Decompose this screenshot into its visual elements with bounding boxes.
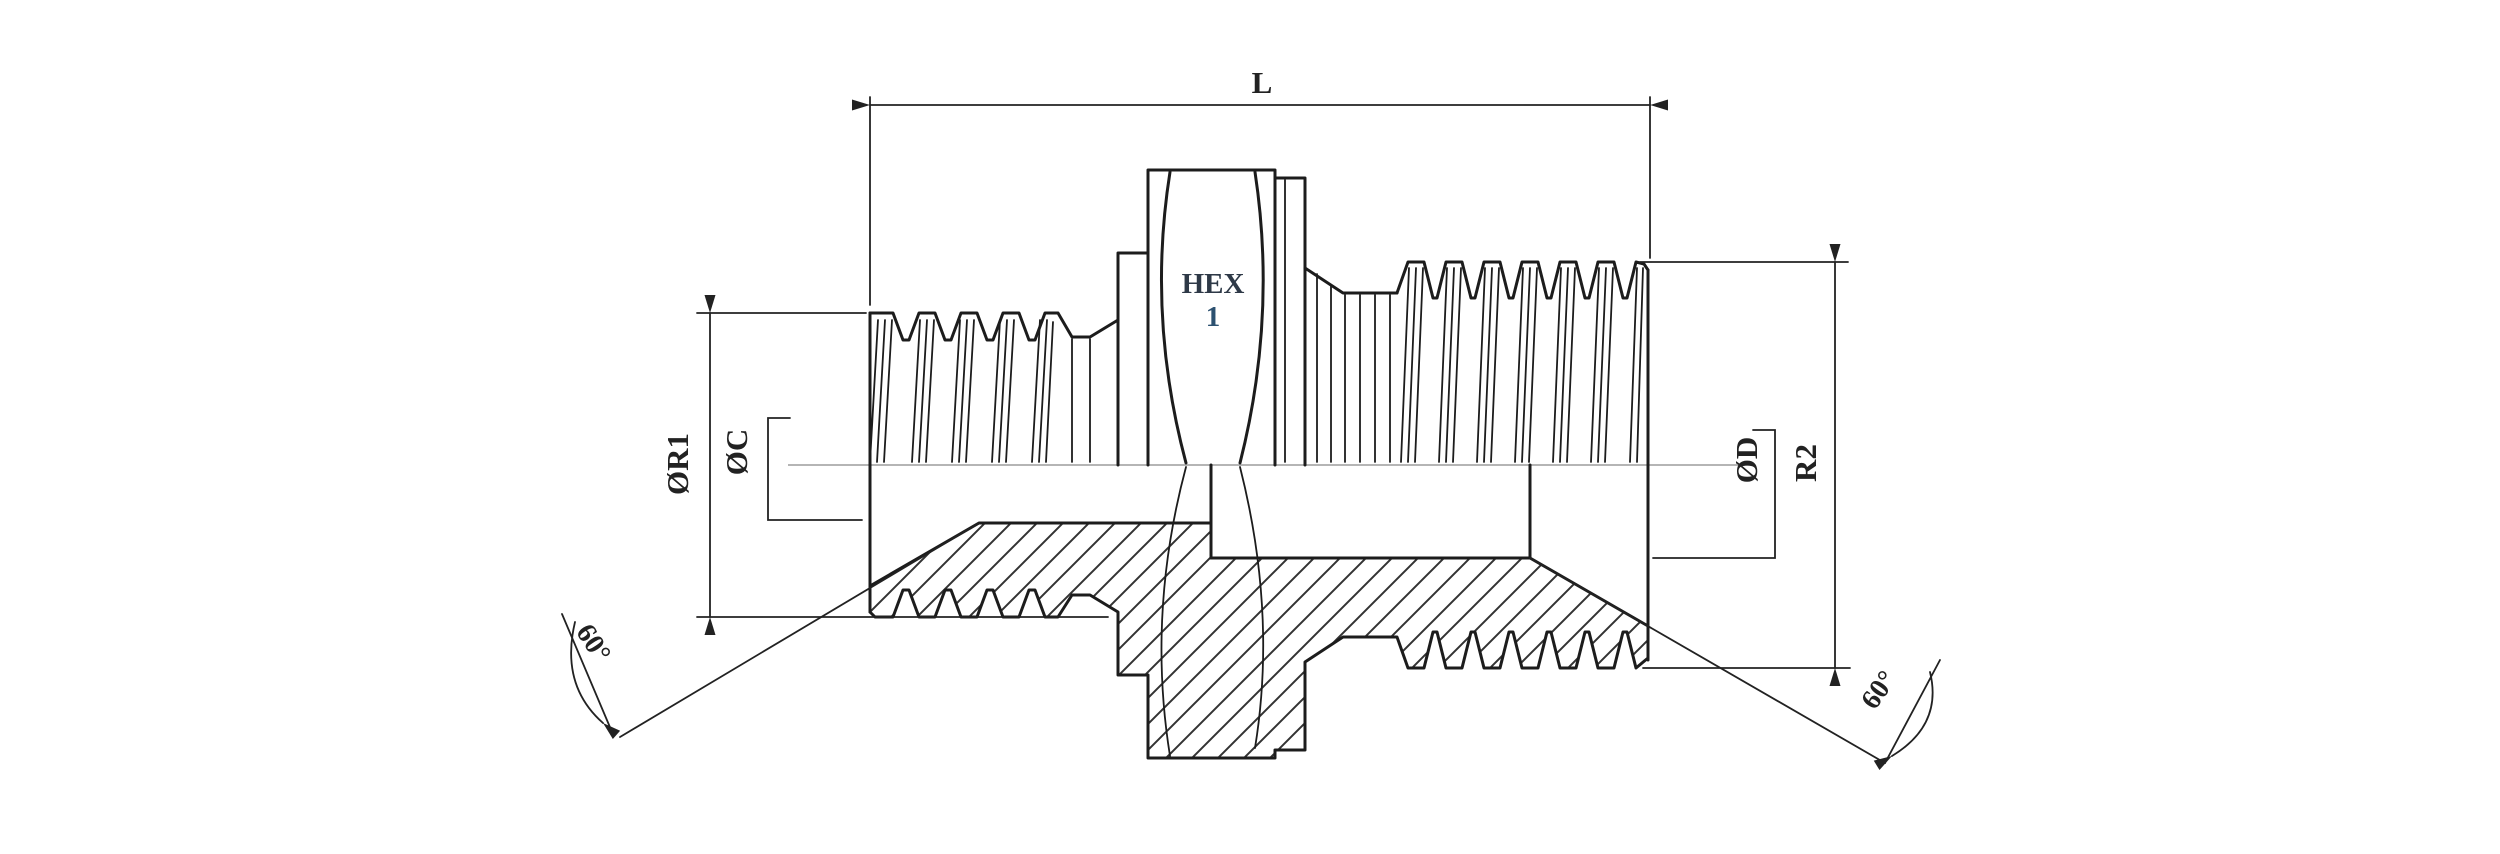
fitting-body: HEX 1 xyxy=(788,170,1745,758)
label-R1: ØR1 xyxy=(660,433,695,495)
neck-profile xyxy=(1118,253,1148,465)
dimension-diameter-C: ØC xyxy=(719,418,862,520)
label-angle-right: 60° xyxy=(1855,665,1903,715)
right-taper-element-lines xyxy=(1285,180,1390,462)
label-R2: R2 xyxy=(1788,444,1823,482)
left-thread-crest-profile xyxy=(870,313,1118,340)
angle-edge-line xyxy=(1885,660,1940,763)
label-C: ØC xyxy=(719,429,754,476)
left-thread-flank-lines xyxy=(870,320,1053,462)
hex-flat-arc-left xyxy=(1161,172,1186,463)
angle-leader-line xyxy=(1530,558,1885,763)
collar-profile xyxy=(1275,178,1305,465)
hex-label: HEX xyxy=(1182,268,1245,300)
leader-C xyxy=(768,418,862,520)
thread-runout-lines xyxy=(1072,339,1090,462)
right-taper-profile xyxy=(1305,268,1397,293)
label-L: L xyxy=(1252,65,1273,100)
dimension-length-L: L xyxy=(870,65,1650,305)
hex-flat-arc-right xyxy=(1240,172,1263,463)
dimension-angle-left: 60° xyxy=(562,523,979,737)
hex-size-label: 1 xyxy=(1206,301,1221,333)
drawing-page: HEX 1 L ØR1 ØC ØD xyxy=(0,0,2500,854)
technical-drawing: HEX 1 L ØR1 ØC ØD xyxy=(0,0,2500,854)
label-angle-left: 60° xyxy=(569,618,616,668)
angle-leader-line xyxy=(620,523,979,737)
dimension-diameter-D: ØD xyxy=(1653,430,1775,558)
label-D: ØD xyxy=(1729,437,1764,484)
dimension-angle-right: 60° xyxy=(1530,558,1940,763)
